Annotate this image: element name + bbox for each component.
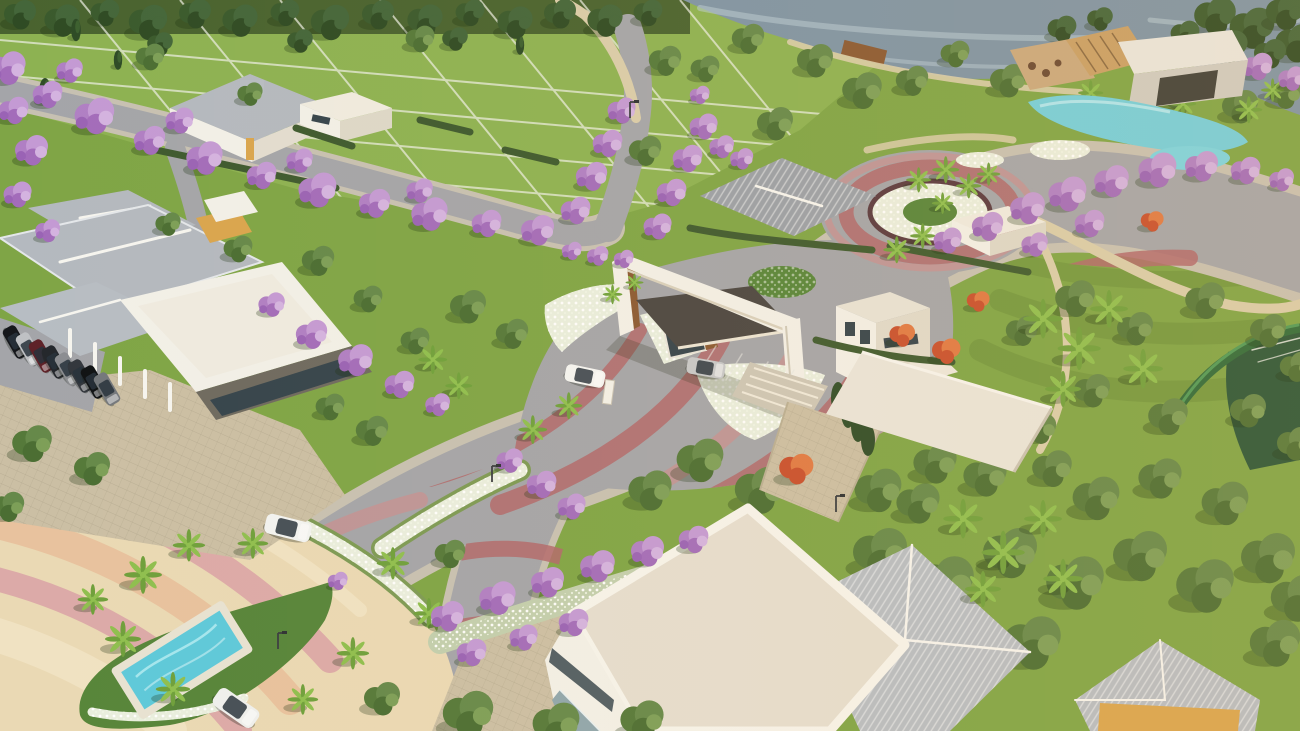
sunset-light-overlay: [0, 0, 1300, 731]
aerial-render: [0, 0, 1300, 731]
scene-canvas: [0, 0, 1300, 731]
